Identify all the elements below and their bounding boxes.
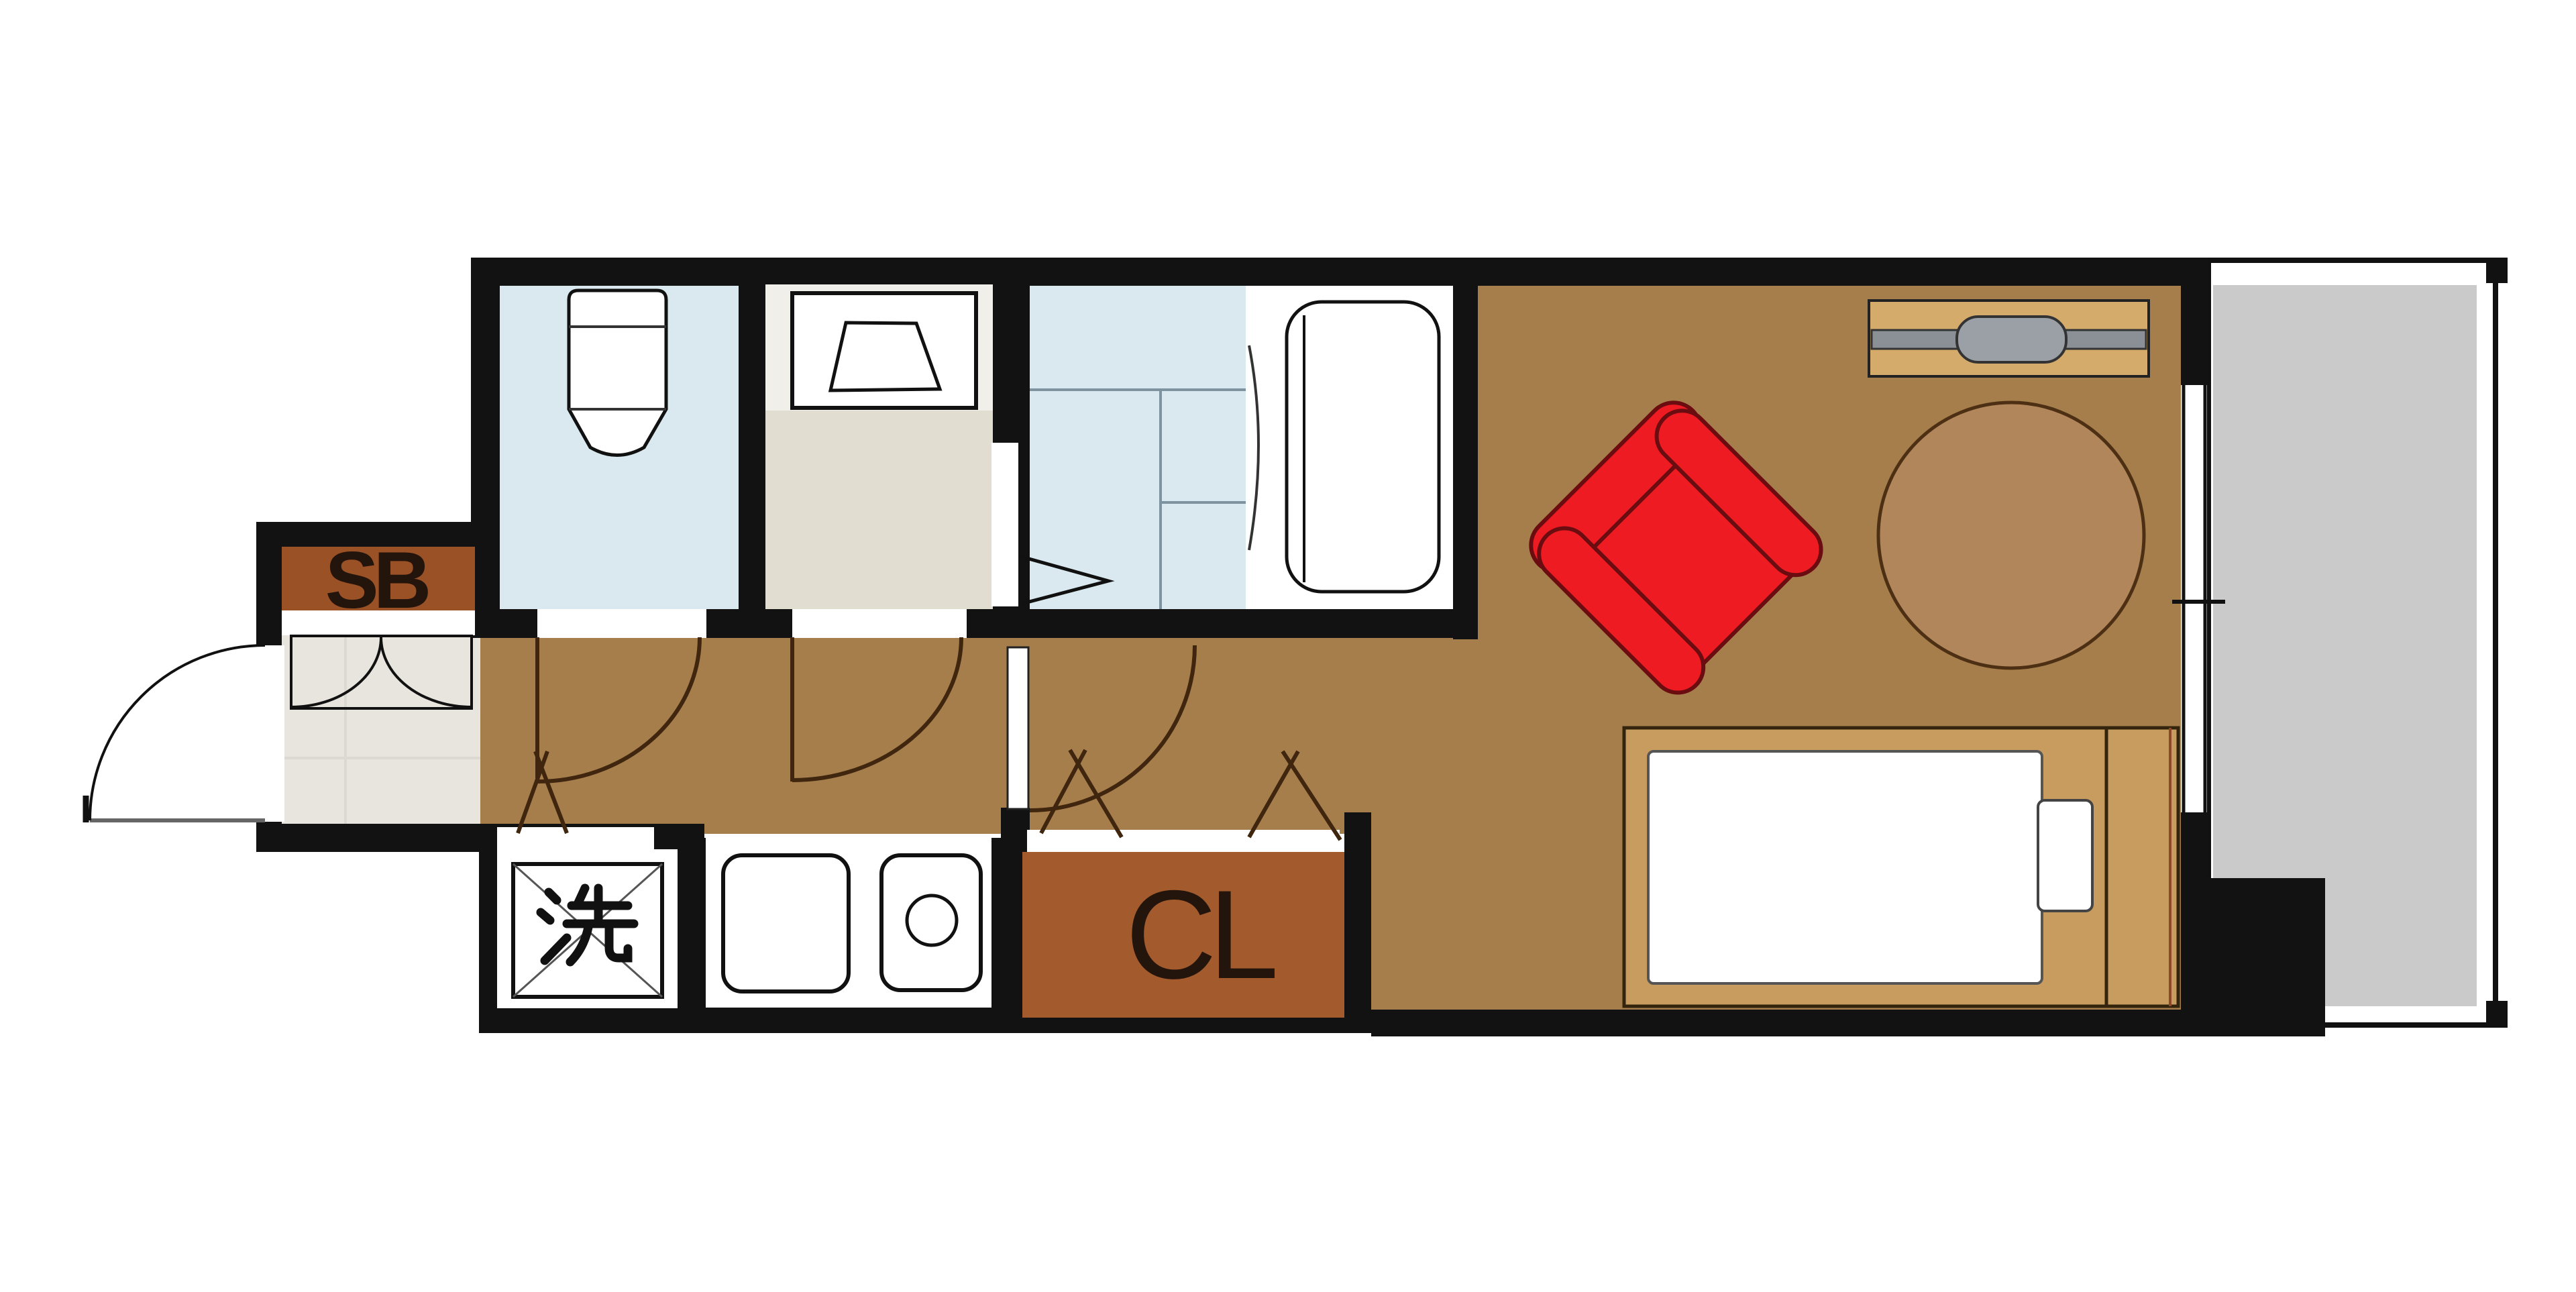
svg-text:CL: CL [1126,864,1275,1005]
svg-text:SB: SB [325,535,429,625]
